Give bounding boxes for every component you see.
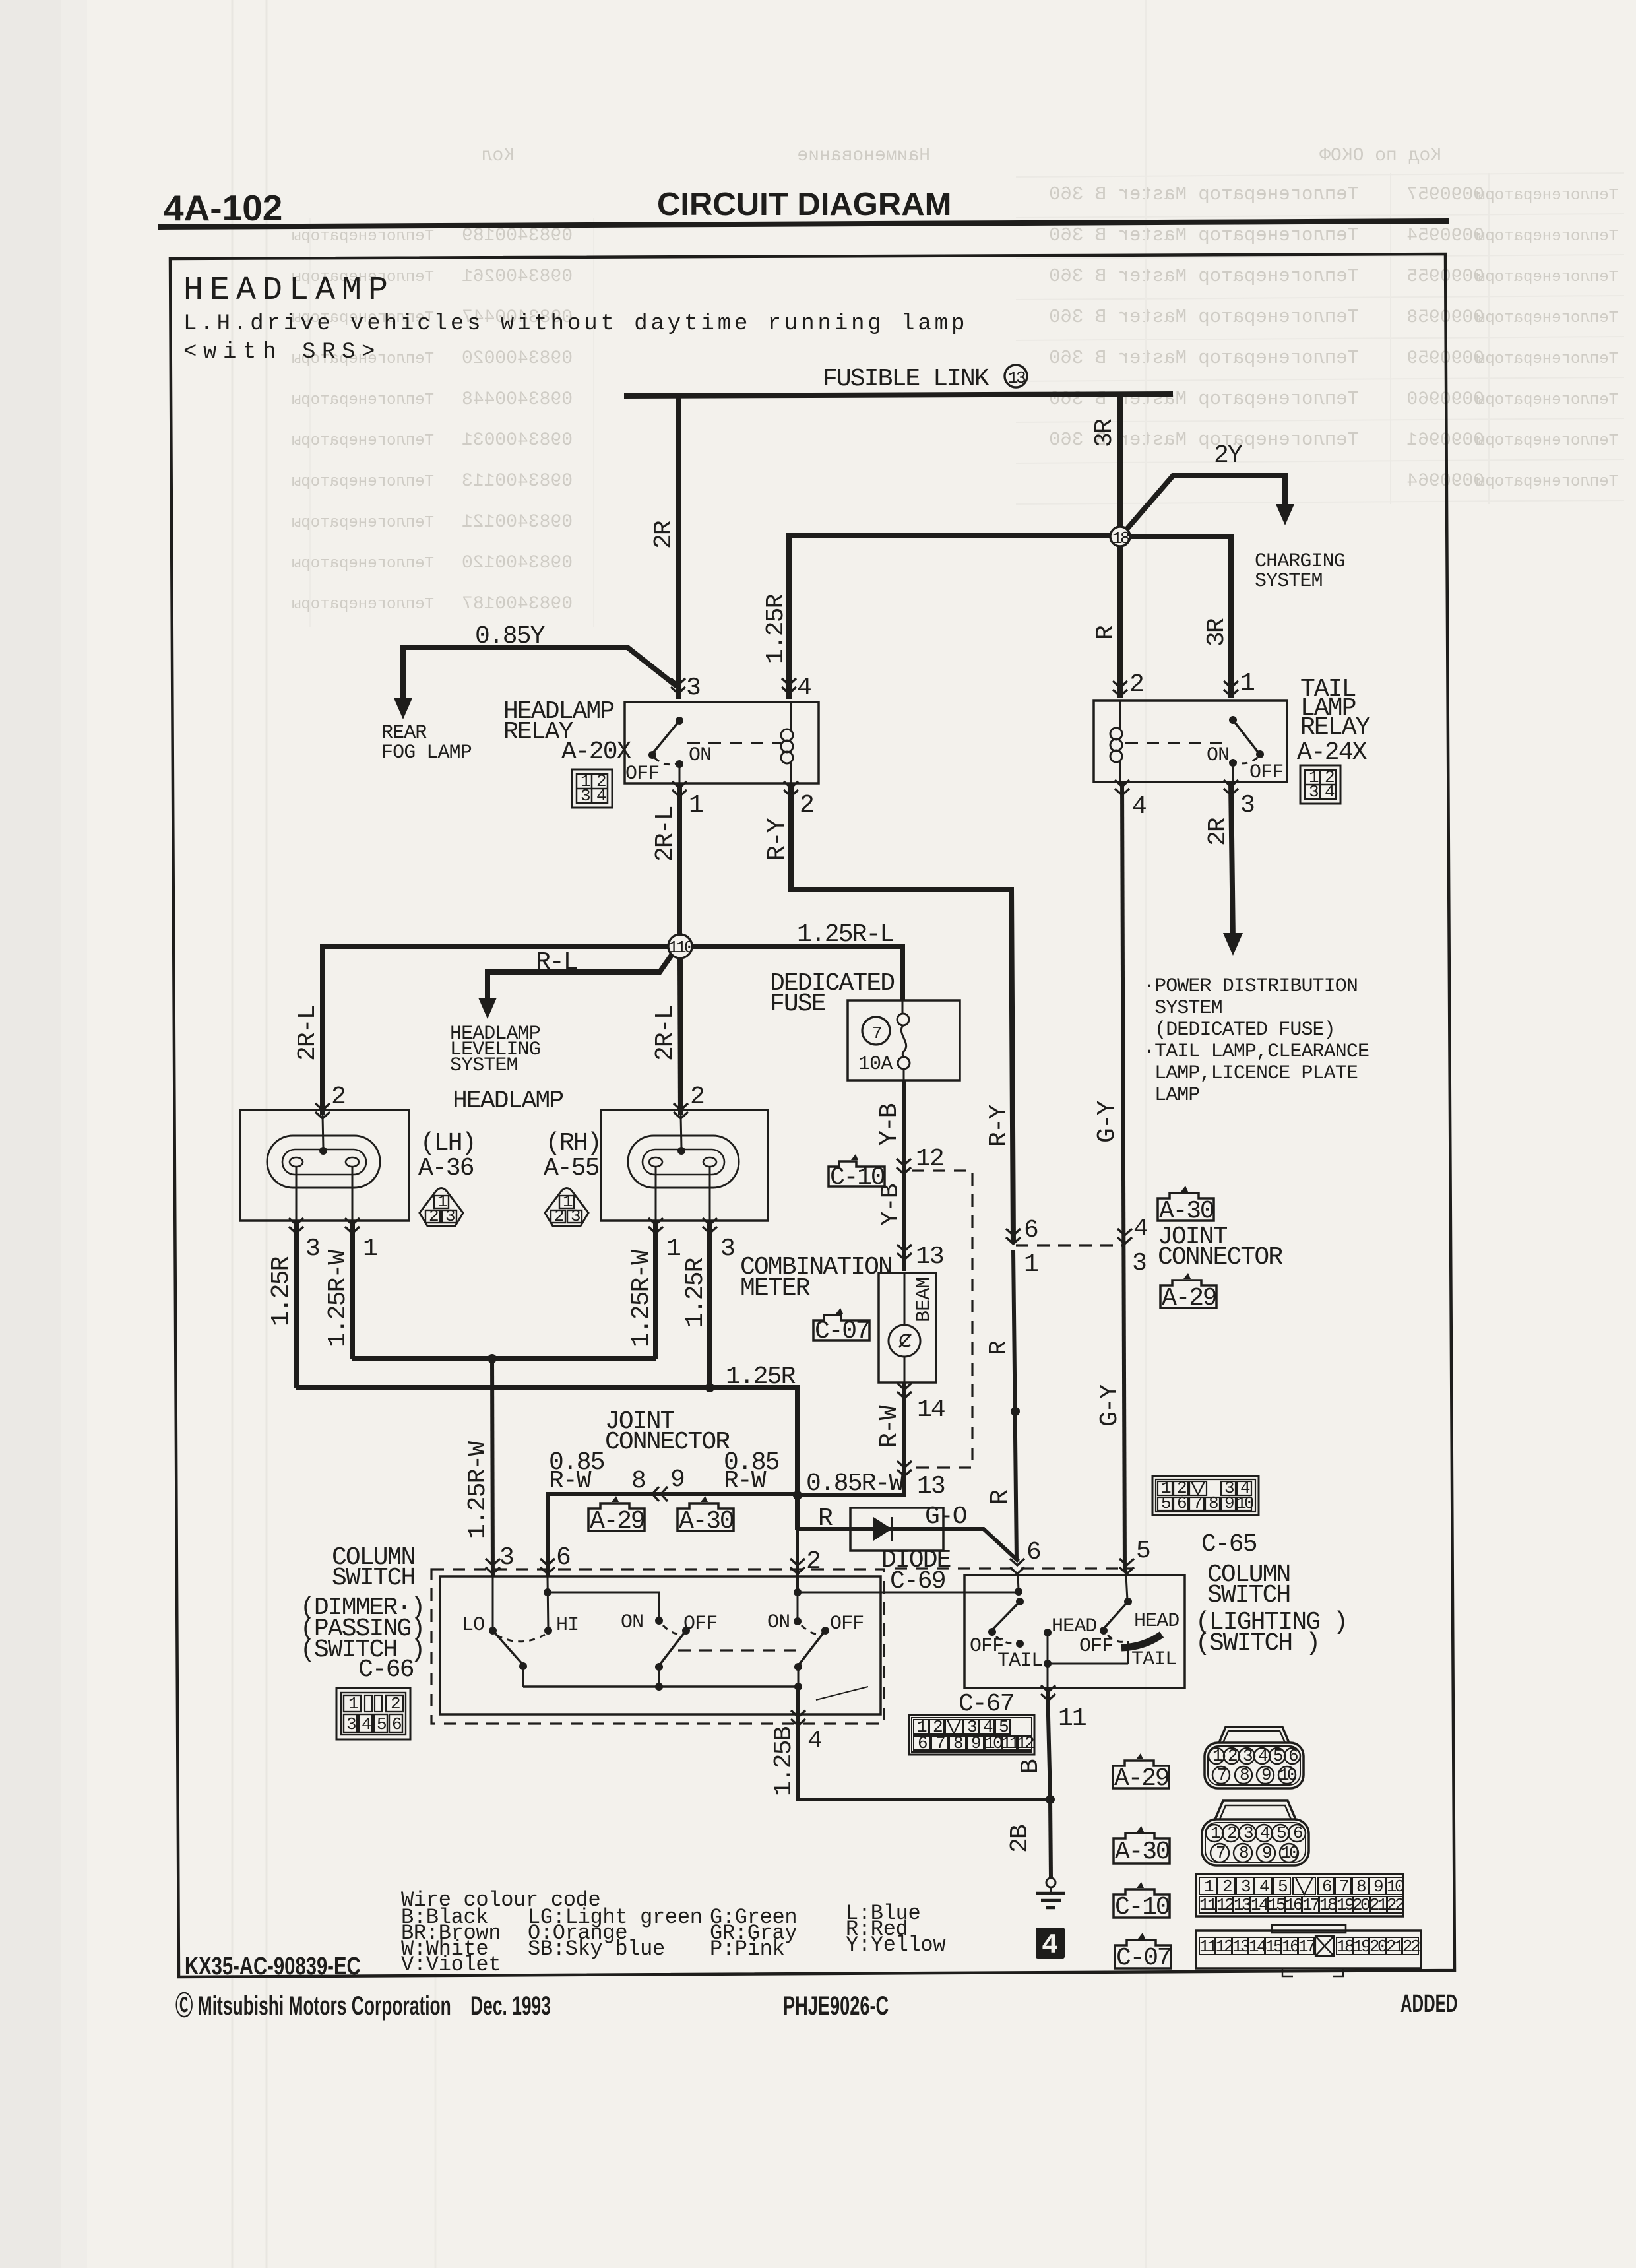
svg-text:OFF: OFF (830, 1613, 864, 1635)
svg-text:C-66: C-66 (358, 1656, 414, 1684)
svg-text:2Y: 2Y (1214, 441, 1243, 470)
svg-text:L.H.drive vehicles without day: L.H.drive vehicles without daytime runni… (183, 311, 968, 337)
svg-text:HEADLAMP: HEADLAMP (183, 272, 394, 309)
svg-text:2R-L: 2R-L (294, 1006, 322, 1061)
svg-text:OFF: OFF (625, 763, 659, 785)
svg-text:0.85Y: 0.85Y (475, 622, 546, 651)
svg-text:A-20X: A-20X (561, 738, 632, 766)
svg-text:R: R (986, 1490, 1015, 1505)
svg-text:1.25R-W: 1.25R-W (464, 1441, 492, 1539)
svg-text:3: 3 (1243, 1746, 1252, 1766)
svg-text:16: 16 (1282, 1937, 1299, 1957)
svg-text:4: 4 (1133, 1215, 1147, 1243)
svg-text:C-69: C-69 (890, 1567, 945, 1596)
svg-text:17: 17 (1298, 1937, 1315, 1957)
svg-text:9: 9 (1373, 1877, 1383, 1896)
svg-text:R: R (818, 1505, 833, 1533)
svg-text:2: 2 (1222, 1877, 1232, 1896)
svg-text:2: 2 (1129, 670, 1143, 699)
svg-text:1.25R-W: 1.25R-W (627, 1250, 656, 1347)
svg-text:12: 12 (1017, 1733, 1034, 1753)
svg-text:R-W: R-W (875, 1405, 904, 1448)
svg-text:Наименование: Наименование (797, 146, 930, 166)
svg-text:0983400031: 0983400031 (462, 430, 573, 451)
svg-text:0983400121: 0983400121 (462, 512, 573, 533)
svg-text:Теплогенератор Master B 360: Теплогенератор Master B 360 (1049, 265, 1359, 287)
svg-text:ON: ON (621, 1611, 643, 1634)
svg-text:17: 17 (1302, 1895, 1319, 1915)
svg-text:13: 13 (1232, 1937, 1249, 1957)
svg-text:3: 3 (571, 1206, 580, 1226)
svg-text:20: 20 (1369, 1937, 1387, 1957)
svg-text:6: 6 (556, 1543, 570, 1572)
svg-text:2: 2 (800, 791, 813, 820)
svg-text:15: 15 (1265, 1937, 1282, 1957)
svg-text:22: 22 (1387, 1895, 1404, 1915)
svg-text:HI: HI (556, 1614, 579, 1636)
svg-text:G-O: G-O (925, 1503, 966, 1531)
svg-text:13: 13 (1234, 1895, 1251, 1915)
svg-text:3: 3 (346, 1714, 356, 1734)
svg-text:8: 8 (1239, 1843, 1248, 1863)
svg-text:3: 3 (499, 1543, 513, 1572)
svg-text:8: 8 (631, 1467, 645, 1495)
svg-text:0983400020: 0983400020 (462, 348, 573, 369)
svg-text:10: 10 (1387, 1877, 1404, 1896)
svg-text:HEAD: HEAD (1134, 1610, 1179, 1633)
svg-text:2: 2 (1227, 1823, 1236, 1843)
svg-text:Теплогенераторы: Теплогенераторы (292, 432, 434, 450)
svg-text:6: 6 (1177, 1493, 1186, 1513)
svg-text:2R-L: 2R-L (651, 806, 679, 862)
svg-text:ON: ON (1207, 744, 1229, 767)
svg-text:3: 3 (305, 1235, 319, 1263)
svg-text:22: 22 (1402, 1937, 1420, 1957)
svg-text:6: 6 (1293, 1823, 1302, 1843)
svg-text:12: 12 (1216, 1895, 1234, 1915)
svg-text:1.25R: 1.25R (267, 1256, 296, 1326)
svg-text:A-29: A-29 (590, 1507, 645, 1536)
svg-text:Теплогенераторы: Теплогенераторы (292, 514, 434, 532)
svg-text:4: 4 (1132, 793, 1146, 821)
svg-text:6: 6 (1288, 1746, 1298, 1766)
svg-text:7: 7 (1339, 1877, 1348, 1896)
svg-text:C-65: C-65 (1201, 1530, 1257, 1559)
svg-text:Теплогенератор Master B 360: Теплогенератор Master B 360 (1049, 388, 1359, 410)
svg-text:KX35-AC-90839-EC: KX35-AC-90839-EC (185, 1952, 361, 1980)
svg-text:19: 19 (1353, 1937, 1370, 1957)
svg-text:14: 14 (1249, 1937, 1267, 1957)
svg-text:Код по ОКОФ: Код по ОКОФ (1319, 146, 1441, 166)
svg-text:14: 14 (1251, 1895, 1269, 1915)
svg-text:LO: LO (462, 1614, 484, 1636)
svg-text:12: 12 (1216, 1937, 1233, 1957)
svg-text:HEADLAMP: HEADLAMP (453, 1087, 563, 1115)
svg-text:Теплогенераторы: Теплогенераторы (292, 473, 434, 491)
svg-text:5: 5 (1136, 1537, 1150, 1565)
svg-text:4A-102: 4A-102 (164, 187, 282, 228)
svg-text:1: 1 (1240, 669, 1254, 697)
svg-text:A-30: A-30 (1115, 1838, 1170, 1866)
svg-text:7: 7 (872, 1023, 881, 1043)
svg-text:ON: ON (767, 1611, 790, 1634)
svg-text:1.25R-W: 1.25R-W (324, 1250, 352, 1347)
svg-text:6: 6 (918, 1733, 927, 1753)
svg-text:3: 3 (1132, 1249, 1146, 1278)
svg-text:0983400187: 0983400187 (462, 594, 573, 614)
svg-text:10: 10 (1279, 1765, 1296, 1785)
svg-text:2R: 2R (650, 521, 678, 549)
svg-text:A-30: A-30 (679, 1507, 734, 1536)
svg-text:5: 5 (1276, 1823, 1286, 1843)
svg-text:2: 2 (690, 1083, 704, 1111)
svg-text:C-07: C-07 (1116, 1944, 1170, 1972)
svg-text:OFF: OFF (683, 1613, 717, 1635)
svg-text:HEAD: HEAD (1052, 1615, 1096, 1638)
svg-text:18: 18 (1319, 1895, 1337, 1915)
svg-text:0.85R-W: 0.85R-W (806, 1470, 904, 1498)
svg-text:Теплогенераторы: Теплогенераторы (1476, 269, 1618, 286)
svg-text:<with SRS>: <with SRS> (183, 340, 381, 365)
svg-text:A-30: A-30 (1159, 1197, 1214, 1225)
svg-text:16: 16 (1285, 1895, 1302, 1915)
svg-text:2: 2 (1228, 1746, 1237, 1766)
svg-text:1.25R: 1.25R (681, 1258, 710, 1328)
svg-text:4: 4 (807, 1727, 821, 1755)
svg-text:3: 3 (1241, 1877, 1250, 1896)
svg-text:OFF: OFF (1249, 761, 1283, 784)
svg-text:Теплогенератор Master B 360: Теплогенератор Master B 360 (1049, 183, 1359, 205)
svg-text:R: R (985, 1341, 1013, 1355)
svg-text:9: 9 (670, 1466, 684, 1494)
svg-text:(RH): (RH) (546, 1129, 601, 1157)
svg-text:20: 20 (1352, 1895, 1369, 1915)
svg-text:OFF: OFF (1079, 1635, 1113, 1658)
svg-text:1.25R-L: 1.25R-L (797, 921, 893, 949)
svg-text:3: 3 (581, 786, 590, 806)
svg-text:13: 13 (916, 1243, 943, 1271)
svg-text:1: 1 (689, 791, 703, 820)
svg-text:1: 1 (363, 1235, 377, 1263)
svg-text:A-29: A-29 (1162, 1284, 1216, 1312)
svg-text:10: 10 (1281, 1843, 1298, 1863)
svg-text:ADDED: ADDED (1400, 1989, 1457, 2017)
svg-text:13: 13 (917, 1472, 945, 1501)
svg-text:8: 8 (1356, 1877, 1366, 1896)
svg-text:2B: 2B (1006, 1825, 1034, 1853)
svg-text:21: 21 (1369, 1895, 1387, 1915)
svg-text:A-55: A-55 (544, 1154, 599, 1183)
svg-text:FUSIBLE LINK: FUSIBLE LINK (823, 365, 990, 393)
svg-text:9: 9 (971, 1733, 980, 1753)
svg-text:11: 11 (1199, 1937, 1217, 1957)
svg-text:2: 2 (554, 1206, 563, 1226)
svg-text:A-36: A-36 (418, 1154, 474, 1183)
svg-text:Кол: Кол (482, 146, 515, 166)
svg-text:2: 2 (331, 1083, 345, 1111)
svg-text:5: 5 (1161, 1493, 1170, 1513)
svg-text:Теплогенераторы: Теплогенераторы (292, 228, 434, 245)
svg-text:6: 6 (1322, 1877, 1331, 1896)
svg-text:18: 18 (1337, 1937, 1354, 1957)
svg-text:3: 3 (720, 1235, 734, 1263)
svg-text:11: 11 (1199, 1895, 1217, 1915)
svg-text:9: 9 (1262, 1843, 1271, 1863)
svg-text:0983400261: 0983400261 (462, 267, 573, 287)
svg-text:0983400189: 0983400189 (462, 226, 573, 246)
svg-text:1.25R: 1.25R (726, 1363, 796, 1391)
svg-text:2R-L: 2R-L (651, 1006, 679, 1061)
svg-text:4: 4 (1042, 1929, 1058, 1961)
svg-text:1.25R: 1.25R (762, 594, 790, 664)
svg-text:G-Y: G-Y (1096, 1384, 1124, 1427)
svg-text:C-07: C-07 (815, 1317, 869, 1345)
svg-text:3R: 3R (1203, 618, 1231, 647)
svg-text:15: 15 (1268, 1895, 1285, 1915)
svg-text:3: 3 (1243, 1823, 1253, 1843)
svg-text:(DIMMER·)(PASSING)(SWITCH ): (DIMMER·)(PASSING)(SWITCH ) (300, 1594, 424, 1664)
svg-text:7: 7 (1217, 1765, 1226, 1785)
svg-text:7: 7 (1216, 1843, 1225, 1863)
svg-text:Теплогенераторы: Теплогенераторы (1476, 309, 1618, 327)
svg-text:7: 7 (935, 1733, 945, 1753)
svg-text:0090954: 0090954 (1406, 226, 1484, 246)
svg-text:10A: 10A (858, 1053, 893, 1076)
svg-text:(LH): (LH) (420, 1129, 476, 1157)
svg-text:SB:Sky blue: SB:Sky blue (528, 1937, 665, 1961)
svg-text:TAIL: TAIL (997, 1650, 1042, 1672)
svg-text:BEAM: BEAM (913, 1278, 935, 1322)
svg-text:G-Y: G-Y (1093, 1100, 1121, 1143)
svg-text:Y:Yellow: Y:Yellow (846, 1933, 945, 1957)
svg-text:0090957: 0090957 (1406, 185, 1484, 205)
svg-text:3: 3 (445, 1206, 455, 1226)
svg-text:Теплогенераторы: Теплогенераторы (292, 555, 434, 573)
svg-text:A-29: A-29 (1114, 1765, 1169, 1793)
svg-text:2: 2 (391, 1694, 400, 1714)
svg-text:COLUMNSWITCH: COLUMNSWITCH (332, 1543, 414, 1592)
svg-text:C-10: C-10 (1115, 1893, 1170, 1922)
svg-text:8: 8 (1209, 1493, 1218, 1513)
svg-text:B: B (1017, 1759, 1045, 1774)
svg-text:PHJE9026-C: PHJE9026-C (783, 1992, 889, 2021)
svg-text:21: 21 (1386, 1937, 1404, 1957)
svg-text:5: 5 (377, 1714, 386, 1734)
svg-text:6: 6 (1026, 1538, 1040, 1567)
svg-text:R-L: R-L (536, 948, 577, 977)
svg-text:Теплогенераторы: Теплогенераторы (1476, 473, 1618, 491)
svg-text:Теплогенератор Master B 360: Теплогенератор Master B 360 (1049, 224, 1359, 246)
svg-text:10: 10 (1236, 1493, 1253, 1513)
svg-text:1: 1 (1024, 1250, 1038, 1279)
svg-text:Теплогенераторы: Теплогенераторы (1476, 350, 1618, 368)
svg-text:Теплогенератор Master B 360: Теплогенератор Master B 360 (1049, 347, 1359, 369)
svg-text:12: 12 (916, 1145, 943, 1173)
svg-text:6: 6 (1024, 1216, 1038, 1245)
svg-text:14: 14 (917, 1396, 945, 1424)
svg-text:1: 1 (666, 1235, 680, 1263)
svg-text:Теплогенераторы: Теплогенераторы (292, 391, 434, 409)
svg-text:7: 7 (1193, 1493, 1202, 1513)
svg-text:TAIL: TAIL (1131, 1648, 1176, 1671)
svg-text:3R: 3R (1090, 419, 1119, 447)
svg-text:18: 18 (1112, 529, 1129, 548)
svg-text:Теплогенераторы: Теплогенераторы (1476, 432, 1618, 450)
svg-text:Теплогенераторы: Теплогенераторы (1476, 187, 1618, 205)
svg-text:5: 5 (1273, 1746, 1282, 1766)
svg-text:Теплогенератор Master B 360: Теплогенератор Master B 360 (1049, 306, 1359, 328)
svg-text:8: 8 (1240, 1765, 1249, 1785)
svg-text:CIRCUIT DIAGRAM: CIRCUIT DIAGRAM (657, 187, 951, 222)
svg-text:3: 3 (1309, 782, 1318, 802)
svg-text:A-24X: A-24X (1297, 738, 1368, 767)
svg-text:C-10: C-10 (830, 1163, 885, 1192)
svg-text:9: 9 (1261, 1765, 1271, 1785)
svg-text:0983400448: 0983400448 (462, 389, 573, 410)
svg-text:9: 9 (1224, 1493, 1234, 1513)
svg-text:6: 6 (392, 1714, 401, 1734)
svg-text:Теплогенераторы: Теплогенераторы (1476, 228, 1618, 245)
svg-text:2R: 2R (1204, 818, 1232, 846)
svg-text:V:Violet: V:Violet (401, 1953, 501, 1977)
svg-text:2: 2 (806, 1547, 820, 1576)
svg-text:4: 4 (797, 674, 811, 702)
svg-text:Y-B: Y-B (875, 1103, 904, 1146)
svg-text:Теплогенераторы: Теплогенераторы (292, 596, 434, 614)
svg-text:2: 2 (429, 1206, 438, 1226)
svg-text:COLUMNSWITCH: COLUMNSWITCH (1207, 1561, 1290, 1609)
svg-text:P:Pink: P:Pink (710, 1937, 784, 1961)
svg-text:3: 3 (1240, 791, 1254, 820)
svg-text:0983400113: 0983400113 (462, 471, 573, 492)
svg-text:5: 5 (1278, 1877, 1287, 1896)
svg-text:R: R (1092, 626, 1120, 640)
svg-text:1.25B: 1.25B (770, 1726, 798, 1796)
svg-text:R-Y: R-Y (985, 1104, 1013, 1147)
svg-text:Ⓒ Mitsubishi Motors Corporatio: Ⓒ Mitsubishi Motors Corporation Dec. 199… (175, 1992, 551, 2021)
svg-text:8: 8 (953, 1733, 962, 1753)
svg-text:R-Y: R-Y (763, 818, 792, 860)
svg-text:ON: ON (689, 744, 711, 767)
svg-text:19: 19 (1337, 1895, 1354, 1915)
svg-text:10: 10 (985, 1733, 1002, 1753)
svg-text:11: 11 (1058, 1704, 1086, 1733)
svg-text:13: 13 (1008, 368, 1025, 388)
svg-text:Теплогенераторы: Теплогенераторы (1476, 391, 1618, 409)
svg-text:3: 3 (686, 674, 700, 702)
svg-text:0983400120: 0983400120 (462, 553, 573, 573)
